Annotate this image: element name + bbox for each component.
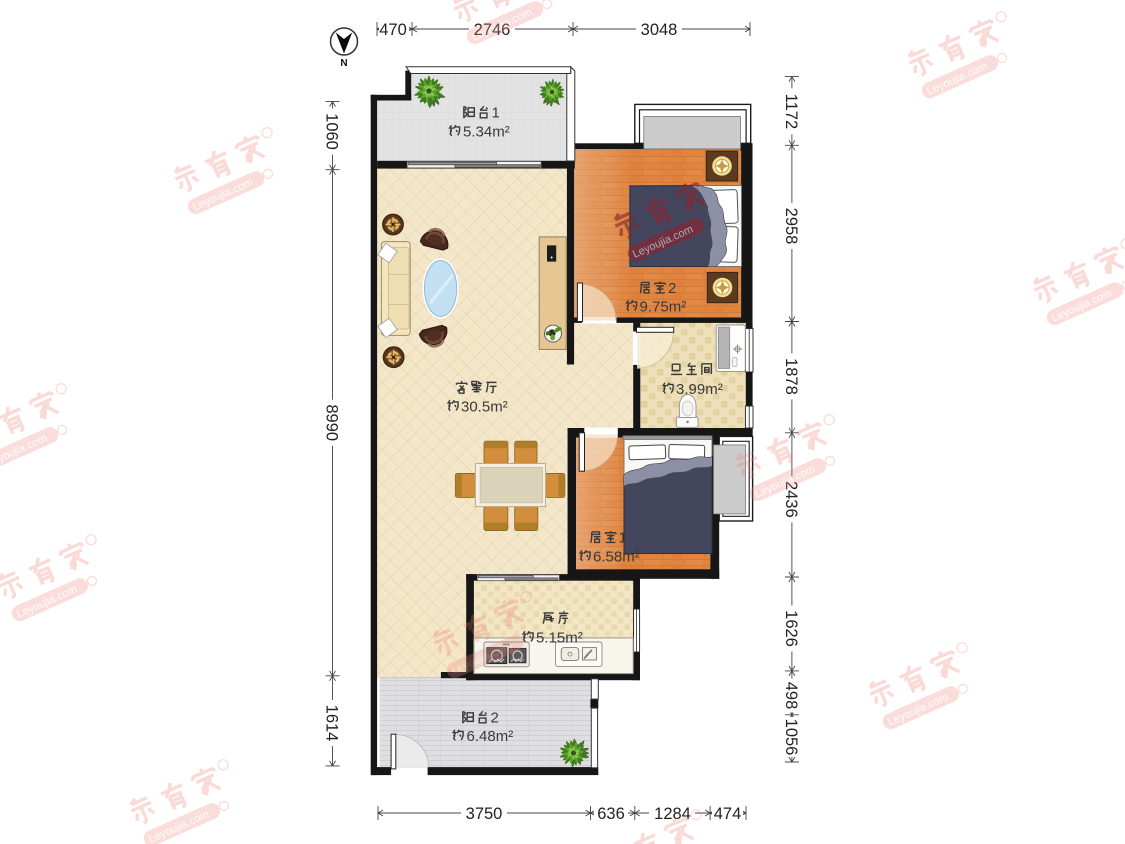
svg-text:470: 470 <box>379 21 407 39</box>
svg-text:1060: 1060 <box>323 113 341 150</box>
svg-text:2: 2 <box>668 280 676 297</box>
svg-text:1172: 1172 <box>782 94 800 129</box>
svg-text:5.34m²: 5.34m² <box>463 124 510 141</box>
svg-text:1: 1 <box>492 105 500 122</box>
svg-text:498: 498 <box>782 682 800 710</box>
svg-text:1056: 1056 <box>782 719 800 756</box>
svg-text:8990: 8990 <box>323 404 341 441</box>
svg-text:2: 2 <box>491 710 499 727</box>
svg-text:6.58m²: 6.58m² <box>593 549 640 566</box>
svg-text:2958: 2958 <box>782 208 800 245</box>
svg-text:1: 1 <box>619 530 627 547</box>
svg-text:3750: 3750 <box>466 805 503 823</box>
svg-text:5.15m²: 5.15m² <box>536 630 583 647</box>
svg-text:9.75m²: 9.75m² <box>640 299 687 316</box>
svg-text:636: 636 <box>597 805 625 823</box>
svg-text:N: N <box>340 58 347 69</box>
svg-text:474: 474 <box>714 805 742 823</box>
svg-text:1626: 1626 <box>782 610 800 647</box>
svg-text:3.99m²: 3.99m² <box>676 381 723 398</box>
svg-text:1614: 1614 <box>323 705 341 742</box>
svg-text:30.5m²: 30.5m² <box>461 399 508 416</box>
svg-text:1878: 1878 <box>782 358 800 395</box>
svg-text:3048: 3048 <box>641 21 678 39</box>
svg-text:6.48m²: 6.48m² <box>467 728 514 745</box>
